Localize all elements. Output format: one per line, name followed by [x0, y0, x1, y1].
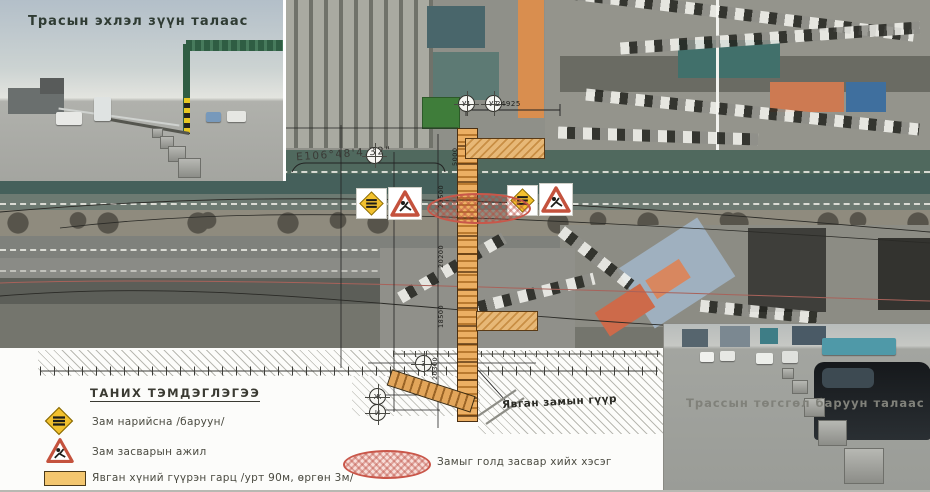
car: [227, 111, 246, 122]
legend-title: ТАНИХ ТЭМДЭГЛЭГЭЭ: [90, 386, 260, 402]
legend-item-label: Замыг голд засвар хийх хэсэг: [437, 456, 612, 468]
bus: [822, 338, 896, 355]
road-works-sign-legend: [46, 437, 74, 464]
car: [756, 353, 773, 364]
road-works-icon: [46, 437, 74, 464]
concrete-block: [844, 448, 884, 484]
road-narrows-sign-legend: [44, 406, 74, 436]
car: [206, 112, 221, 122]
aerial-building-green: [422, 97, 460, 129]
photo-caption: Трасын эхлэл зүүн талаас: [28, 10, 248, 29]
car: [56, 112, 82, 125]
road-works-sign: [389, 188, 421, 219]
dimension-5000: 5000: [451, 147, 459, 166]
axis-marker-label: 3: [421, 360, 425, 368]
aerial-building: [518, 0, 544, 118]
aerial-market-stalls: [283, 0, 433, 148]
aerial-building: [748, 228, 826, 312]
aerial-building: [846, 82, 886, 112]
photo-building: [40, 78, 64, 94]
photo-caption-text: Трасын эхлэл зүүн талаас: [28, 14, 248, 29]
road-narrows-icon: [357, 189, 386, 218]
photo-building: [792, 326, 826, 345]
axis-marker-label: И: [375, 409, 380, 417]
striped-pole: [184, 98, 190, 134]
axis-marker-i: И: [369, 404, 386, 421]
axis-marker-u1: У1: [458, 95, 475, 112]
car: [700, 352, 714, 362]
legend-item-label: Зам засварын ажил: [92, 446, 207, 458]
dimension-24925: 24925: [496, 100, 521, 108]
aerial-building: [878, 238, 930, 310]
car: [720, 351, 735, 361]
road-narrows-sign: [357, 189, 386, 218]
road-narrows-icon: [44, 406, 74, 436]
car: [782, 351, 798, 363]
photo-building: [760, 328, 778, 344]
dimension-20200: 20200: [437, 245, 445, 268]
median-repair-ellipse: [427, 193, 531, 224]
suv-windshield: [822, 368, 874, 388]
bus: [94, 97, 111, 121]
concrete-block: [782, 368, 794, 379]
road-works-sign: [540, 184, 572, 215]
median-repair-ellipse-legend: [343, 450, 431, 479]
traffic-plan-sheet: У1 У2 3 Ж И E106°48'4.32" 24925 5000 215…: [0, 0, 930, 492]
photo-building: [682, 329, 708, 347]
road-works-icon: [389, 188, 421, 219]
photo-route-start: Трасын эхлэл зүүн талаас: [0, 0, 286, 181]
bridge-landing-mid: [476, 311, 538, 331]
photo-caption: Трассын төгсгөл баруун талаас: [686, 392, 925, 411]
aerial-building: [427, 6, 485, 48]
concrete-block: [818, 420, 847, 446]
legend-item-label: Явган хүний гүүрэн гарц /урт 90м, өргөн …: [92, 472, 354, 484]
dimension-18500: 18500: [437, 305, 445, 328]
aerial-building: [770, 82, 844, 112]
pedestrian-bridge-deck: [457, 128, 478, 422]
bridge-landing-north: [465, 138, 545, 159]
photo-route-end: Трассын төгсгөл баруун талаас: [663, 323, 930, 492]
dimension-20300: 20300: [431, 357, 439, 380]
photo-building: [720, 326, 750, 347]
axis-marker-label: У1: [462, 100, 471, 108]
road-works-icon: [540, 184, 572, 215]
pedestrian-overpass-bar-legend: [44, 471, 86, 486]
axis-marker-3: 3: [415, 355, 432, 372]
photo-caption-text: Трассын төгсгөл баруун талаас: [686, 396, 925, 410]
gantry-sign-arm: [186, 40, 283, 51]
hatch-area: [478, 350, 664, 434]
legend-item-label: Зам нарийсна /баруун/: [92, 416, 225, 428]
concrete-block: [178, 158, 201, 178]
